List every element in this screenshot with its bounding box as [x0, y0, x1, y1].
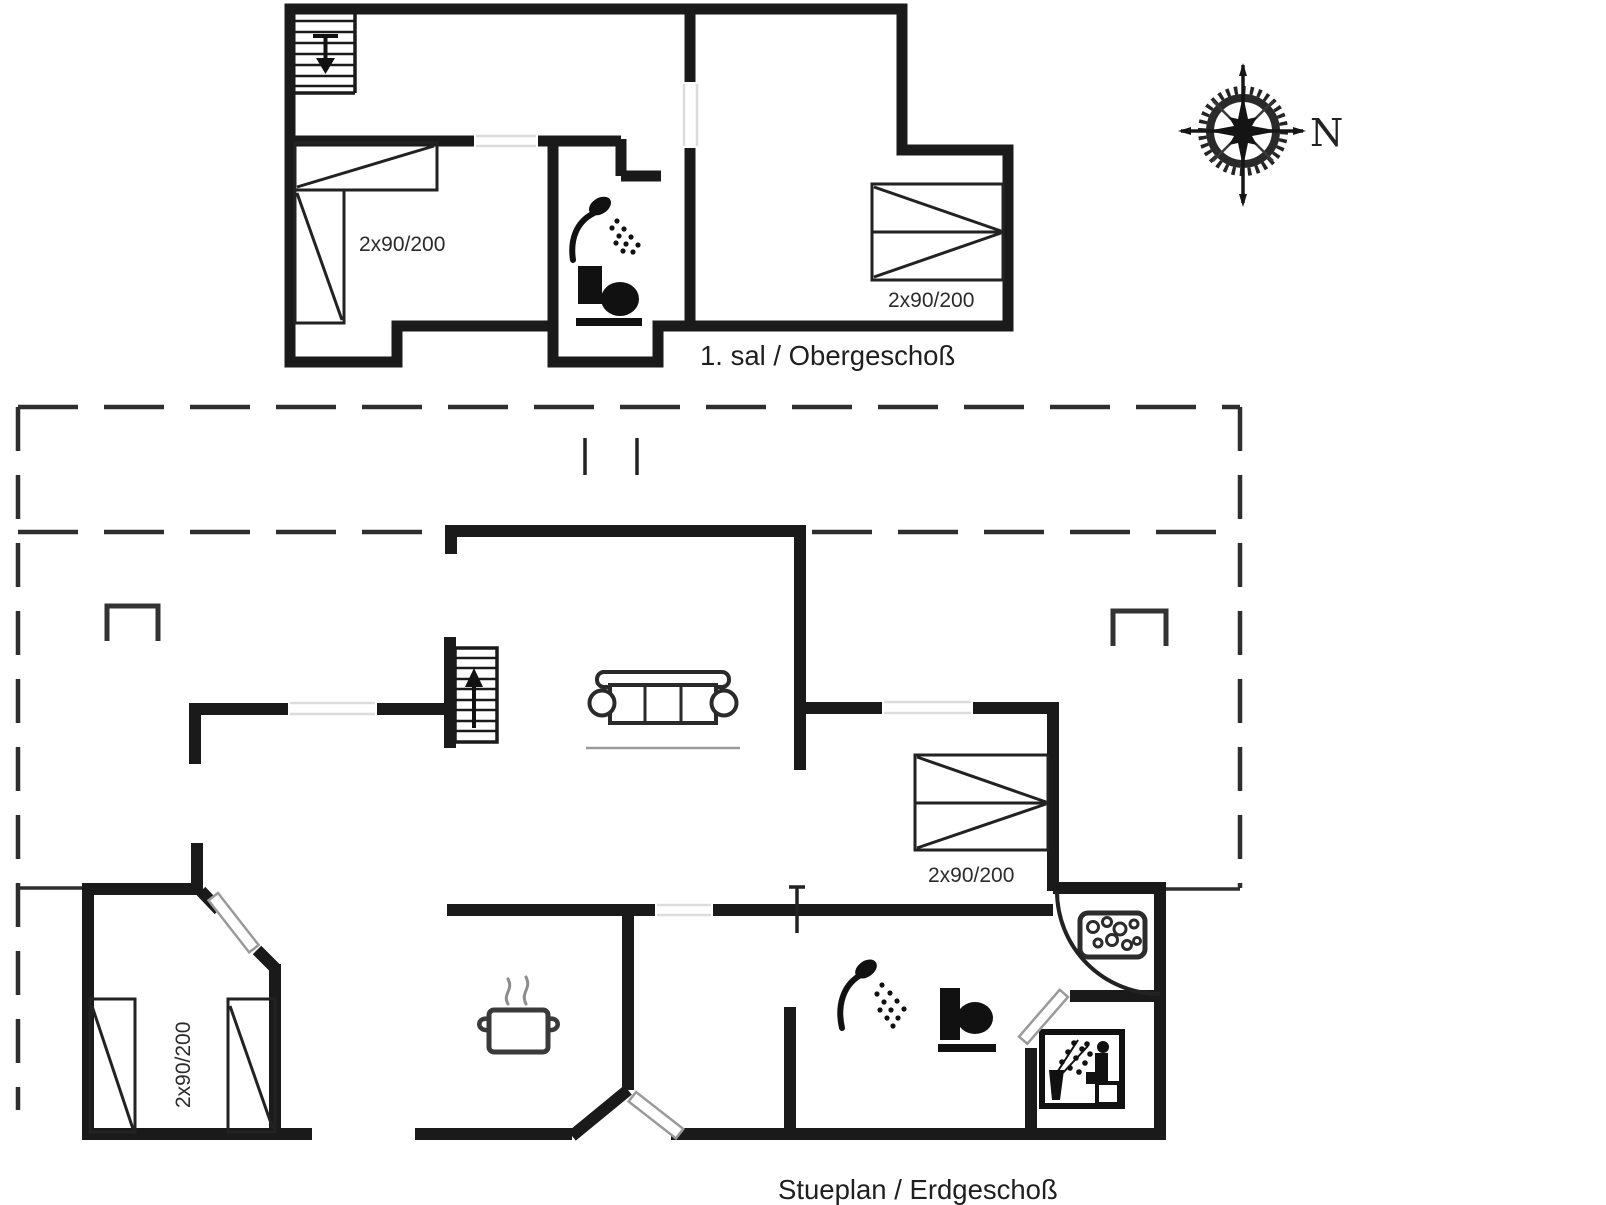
upper-floor-plan: 2x90/200 2x90/200 1. sal / Obergeschoß — [290, 9, 1008, 371]
door-leaf-bedroom-left — [209, 893, 259, 952]
bed-size-label-upper-left: 2x90/200 — [359, 233, 445, 256]
terrace-bracket-right — [1113, 611, 1166, 646]
shower-icon-upper — [572, 193, 640, 260]
shower-spray-dots — [874, 982, 906, 1028]
steam-lines — [506, 977, 527, 1004]
bed-size-label-upper-right: 2x90/200 — [888, 289, 974, 312]
bed-size-label-ground-left: 2x90/200 — [172, 1022, 195, 1108]
terrace-post-marks — [585, 438, 637, 475]
terrace-bracket-left — [107, 606, 158, 641]
floor-plan-document: 2x90/200 2x90/200 1. sal / Obergeschoß — [0, 0, 1606, 1205]
ground-floor-plan: 2x90/200 2x90/200 Stueplan / Erdgeschoß — [18, 407, 1240, 1205]
door-leaf-entrance — [629, 1092, 684, 1138]
toilet-icon-upper — [576, 266, 642, 326]
ground-floor-title: Stueplan / Erdgeschoß — [778, 1174, 1058, 1205]
upper-floor-interior-walls — [290, 9, 690, 330]
bed-upper-right — [872, 184, 1003, 280]
whirlpool-icon — [1080, 913, 1145, 957]
ground-floor-door-openings — [290, 702, 971, 915]
compass-rose-icon: N — [1178, 63, 1343, 207]
upper-floor-title: 1. sal / Obergeschoß — [700, 340, 955, 371]
toilet-icon-ground — [938, 988, 996, 1052]
sauna-icon — [1042, 1032, 1122, 1106]
cooking-pot-icon — [479, 977, 558, 1052]
sauna-person-head — [1097, 1041, 1109, 1053]
stairs-up-icon — [455, 648, 497, 742]
bed-size-label-ground-right: 2x90/200 — [928, 864, 1014, 887]
sofa-icon — [586, 672, 740, 748]
sauna-bench — [1097, 1083, 1119, 1104]
shower-icon-ground — [840, 956, 906, 1029]
stairs-down-icon — [295, 11, 355, 93]
bed-ground-right — [915, 755, 1048, 850]
compass-north-label: N — [1310, 111, 1343, 155]
shower-spray-dots — [609, 218, 640, 254]
floor-plan-canvas: 2x90/200 2x90/200 1. sal / Obergeschoß — [0, 0, 1606, 1205]
stairs-down-arrow — [313, 36, 338, 60]
